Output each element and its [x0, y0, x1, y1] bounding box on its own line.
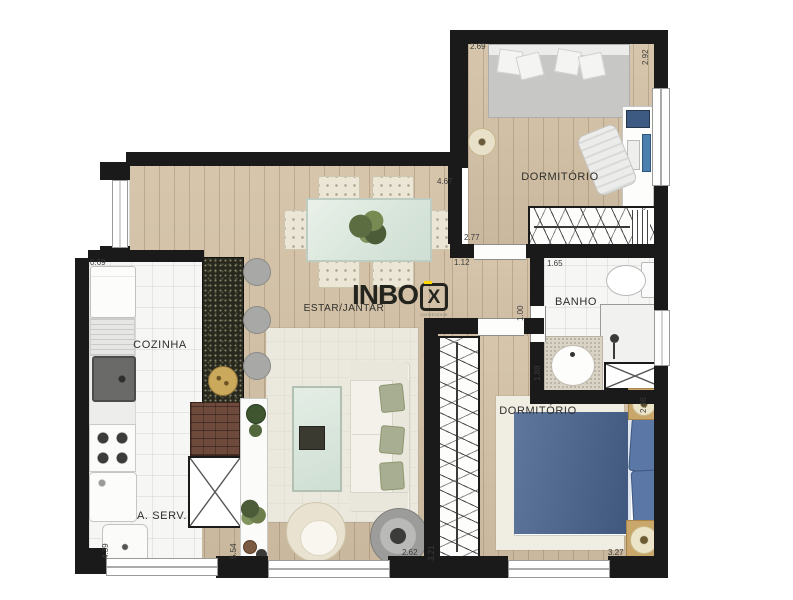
counter-bowl	[208, 366, 238, 396]
laptop	[626, 110, 650, 128]
console-plant	[246, 404, 266, 424]
wall-segment	[100, 162, 130, 180]
kitchen-label: COZINHA	[133, 339, 187, 351]
service-window	[106, 558, 218, 576]
wardrobe-rail	[534, 226, 630, 228]
wall-segment	[608, 556, 668, 578]
wall-segment	[526, 244, 668, 258]
armchair-seat	[300, 520, 338, 556]
wall-segment	[424, 332, 438, 560]
console-plant	[249, 424, 262, 437]
barstool	[243, 306, 271, 334]
wall-segment	[530, 258, 544, 306]
sideboard-decor	[299, 426, 325, 450]
shower-head-icon	[610, 334, 619, 343]
bedside-lamp-table	[468, 128, 496, 156]
measure-living-width: 4.67	[437, 177, 453, 186]
living-balcony-door	[268, 560, 390, 578]
shaft-x-icon	[188, 456, 242, 528]
wall-segment	[654, 184, 668, 244]
inbox-logo: INBO X construtora	[352, 283, 448, 311]
logo-x-letter: X	[420, 283, 448, 311]
measure-bedroom1-width: 2.69	[470, 42, 486, 51]
bedroom2-window	[508, 560, 610, 578]
measure-bedroom2-width: 3.27	[608, 548, 624, 557]
stove	[89, 424, 136, 472]
bedroom2-closet	[438, 336, 480, 562]
console-plant	[238, 496, 268, 528]
bed1-pillow	[578, 52, 606, 80]
wall-segment	[126, 152, 464, 166]
bedroom1-window	[652, 88, 670, 186]
measure-living-bottom: 2.62	[402, 548, 418, 557]
logo-x-box: X construtora	[420, 283, 448, 311]
shower-stem	[613, 343, 615, 359]
floor-plan: DORMITÓRIO DORMITÓRIO BANHO COZINHA A. S…	[0, 0, 793, 600]
wall-segment	[216, 556, 268, 578]
logo-yellow-tick	[424, 281, 432, 284]
wardrobe-shelves	[632, 210, 650, 244]
measure-bath-door: 1.00	[516, 305, 525, 321]
measure-bedroom1-depth: 2.92	[641, 49, 650, 65]
table-centerpiece-plant	[348, 210, 390, 246]
service-label: A. SERV.	[137, 510, 187, 522]
wall-segment	[654, 390, 668, 560]
brick-feature-panel	[190, 402, 240, 456]
measure-kitchen-niche: 0.69	[90, 258, 106, 267]
measure-bedroom2-nook: 2.46	[639, 397, 648, 413]
measure-bedroom1-door: 1.12	[454, 258, 470, 267]
bedroom1-label: DORMITÓRIO	[521, 171, 599, 183]
wall-segment	[450, 244, 474, 258]
logo-tagline: construtora	[420, 312, 448, 317]
washing-machine	[89, 472, 137, 522]
sofa-armrest	[350, 362, 408, 381]
toilet-bowl	[606, 265, 646, 296]
kitchen-sink	[92, 356, 136, 402]
measure-service-depth: 4.39	[101, 543, 110, 559]
wall-segment	[654, 252, 668, 310]
barstool	[243, 352, 271, 380]
logo-text: INBO	[352, 283, 418, 307]
monitor	[642, 134, 651, 172]
measure-bath-counter: 1.88	[533, 365, 542, 381]
bathroom-window	[654, 310, 670, 366]
measure-living-depth: 5.54	[229, 543, 238, 559]
bed2-duvet	[514, 412, 631, 534]
wall-segment	[388, 556, 508, 578]
barstool	[243, 258, 271, 286]
measure-hall-wall: 2.77	[464, 233, 480, 242]
measure-closet-depth: 3.21	[427, 545, 436, 561]
bedroom1-door	[474, 244, 526, 260]
bedroom2-label: DORMITÓRIO	[499, 405, 577, 417]
measure-bath-width: 1.65	[547, 259, 563, 268]
sofa-pillow	[379, 461, 405, 491]
wall-segment	[524, 318, 544, 334]
wall-segment	[450, 44, 468, 168]
sofa-pillow	[379, 383, 406, 413]
closet-rail	[456, 342, 458, 552]
sofa-pillow	[379, 425, 405, 455]
refrigerator	[90, 266, 136, 318]
bathroom-label: BANHO	[555, 296, 597, 308]
bed1-pillow	[554, 48, 582, 76]
living-window	[112, 180, 128, 248]
dish-drainer	[90, 318, 135, 356]
wall-segment	[75, 258, 89, 550]
shower-stall	[600, 304, 655, 363]
wall-segment	[654, 44, 668, 90]
faucet-icon	[570, 352, 575, 357]
decor-pot	[243, 540, 257, 554]
round-side-table-center	[390, 528, 406, 544]
